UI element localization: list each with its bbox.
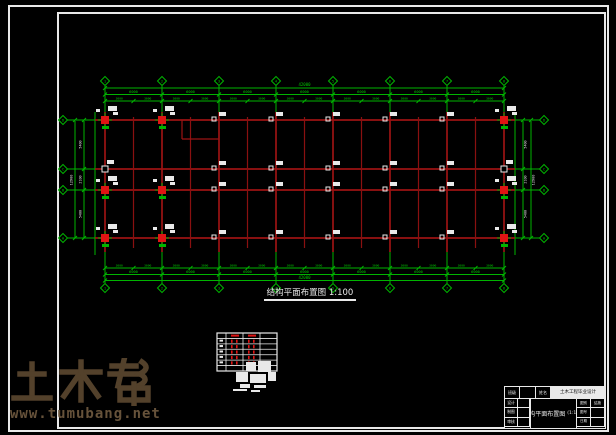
svg-text:3000: 3000 (144, 97, 151, 101)
svg-text:3000: 3000 (116, 97, 123, 101)
title-block-cell-name: 姓名 (536, 387, 551, 398)
svg-text:8: 8 (503, 287, 505, 291)
title-block-number-grid: 图别 结施 图号 日期 (577, 399, 605, 428)
title-block-cell-class: 班级 (505, 387, 520, 398)
svg-text:3: 3 (218, 80, 220, 84)
svg-text:3000: 3000 (344, 97, 351, 101)
svg-text:1: 1 (104, 80, 106, 84)
svg-text:3000: 3000 (230, 97, 237, 101)
title-block: 班级 姓名 土木工程毕业设计 设计 制图 审核 结构平面布置图 (1:100) … (504, 386, 606, 429)
svg-text:6000: 6000 (186, 270, 195, 274)
svg-text:3000: 3000 (287, 97, 294, 101)
title-block-role-check: 审核 (505, 418, 518, 427)
svg-text:A: A (62, 237, 64, 241)
plan-title: 结构平面布置图 1:100 (252, 288, 368, 298)
svg-text:D: D (62, 119, 64, 123)
svg-text:2: 2 (161, 80, 163, 84)
title-block-row1: 班级 姓名 土木工程毕业设计 (505, 387, 605, 399)
watermark-logo-glyphs (14, 360, 148, 404)
svg-text:12900: 12900 (532, 175, 536, 186)
svg-text:6000: 6000 (129, 270, 138, 274)
svg-text:8: 8 (503, 80, 505, 84)
svg-text:6000: 6000 (300, 270, 309, 274)
svg-text:3000: 3000 (201, 97, 208, 101)
svg-text:3000: 3000 (344, 264, 351, 268)
tb-cell-date-label: 日期 (577, 418, 591, 427)
grid-lines (67, 86, 540, 283)
svg-text:6000: 6000 (243, 270, 252, 274)
title-block-roles: 设计 制图 审核 (505, 399, 531, 428)
svg-text:42000: 42000 (298, 275, 311, 280)
svg-text:6: 6 (389, 287, 391, 291)
svg-text:5400: 5400 (79, 210, 83, 218)
svg-text:C: C (543, 168, 545, 172)
title-block-role-draft: 制图 (505, 408, 518, 417)
svg-text:3000: 3000 (458, 97, 465, 101)
watermark-logo (8, 358, 178, 406)
svg-text:3: 3 (218, 287, 220, 291)
svg-text:3000: 3000 (173, 264, 180, 268)
tb-cell-figno-value (591, 408, 605, 417)
svg-text:7: 7 (446, 80, 448, 84)
svg-text:6000: 6000 (357, 90, 366, 94)
drawing-title-text: 结构平面布置图 (531, 409, 565, 418)
svg-text:6000: 6000 (414, 270, 423, 274)
column-symbols (96, 106, 517, 247)
svg-text:2100: 2100 (79, 175, 83, 183)
svg-text:6000: 6000 (243, 90, 252, 94)
svg-text:6000: 6000 (300, 90, 309, 94)
svg-text:3000: 3000 (173, 97, 180, 101)
svg-text:6000: 6000 (357, 270, 366, 274)
svg-text:12900: 12900 (70, 175, 74, 186)
svg-text:3000: 3000 (401, 97, 408, 101)
title-block-role-design: 设计 (505, 399, 518, 408)
plan-title-text: 结构平面布置图 1:100 (264, 288, 357, 301)
svg-text:3000: 3000 (116, 264, 123, 268)
svg-text:D: D (543, 119, 545, 123)
watermark-url: www.tumubang.net (10, 406, 161, 422)
svg-text:3000: 3000 (315, 264, 322, 268)
svg-text:3000: 3000 (401, 264, 408, 268)
svg-text:3000: 3000 (201, 264, 208, 268)
svg-text:7: 7 (446, 287, 448, 291)
svg-text:4: 4 (275, 80, 277, 84)
svg-text:B: B (543, 189, 545, 193)
svg-text:C: C (62, 168, 64, 172)
svg-text:3000: 3000 (258, 264, 265, 268)
svg-text:3000: 3000 (372, 264, 379, 268)
svg-text:6000: 6000 (186, 90, 195, 94)
svg-text:5400: 5400 (524, 210, 528, 218)
title-block-role-design-value (518, 399, 530, 408)
svg-text:42000: 42000 (298, 82, 311, 87)
svg-text:3000: 3000 (315, 97, 322, 101)
title-block-role-draft-value (518, 408, 530, 417)
svg-text:6000: 6000 (414, 90, 423, 94)
svg-text:5: 5 (332, 80, 334, 84)
svg-text:6: 6 (389, 80, 391, 84)
svg-text:3000: 3000 (372, 97, 379, 101)
title-block-drawing-title: 结构平面布置图 (1:100) (531, 399, 577, 428)
svg-text:5400: 5400 (524, 140, 528, 148)
svg-text:1: 1 (104, 287, 106, 291)
svg-text:3000: 3000 (486, 264, 493, 268)
svg-text:3000: 3000 (144, 264, 151, 268)
svg-text:3000: 3000 (486, 97, 493, 101)
tb-cell-figtype-value: 结施 (591, 399, 605, 408)
dimension-lines: 4200060006000600060006000600060003000300… (70, 82, 536, 282)
svg-text:3000: 3000 (258, 97, 265, 101)
svg-text:A: A (543, 237, 545, 241)
svg-text:3000: 3000 (429, 264, 436, 268)
svg-text:6000: 6000 (471, 90, 480, 94)
tb-cell-date-value (591, 418, 605, 427)
svg-text:6000: 6000 (471, 270, 480, 274)
tb-cell-figno-label: 图号 (577, 408, 591, 417)
svg-text:2: 2 (161, 287, 163, 291)
drawing-scale-text: (1:100) (567, 411, 577, 416)
title-block-role-check-value (518, 418, 530, 427)
svg-text:3000: 3000 (230, 264, 237, 268)
cad-drawing-canvas: 4200060006000600060006000600060003000300… (0, 0, 616, 435)
svg-text:2100: 2100 (524, 175, 528, 183)
svg-text:B: B (62, 189, 64, 193)
svg-text:6000: 6000 (129, 90, 138, 94)
svg-text:3000: 3000 (429, 97, 436, 101)
svg-text:3000: 3000 (458, 264, 465, 268)
tb-cell-figtype-label: 图别 (577, 399, 591, 408)
title-block-project-name: 土木工程毕业设计 (551, 387, 605, 398)
svg-text:3000: 3000 (287, 264, 294, 268)
svg-text:5400: 5400 (79, 140, 83, 148)
title-block-cell-class-value (520, 387, 536, 398)
